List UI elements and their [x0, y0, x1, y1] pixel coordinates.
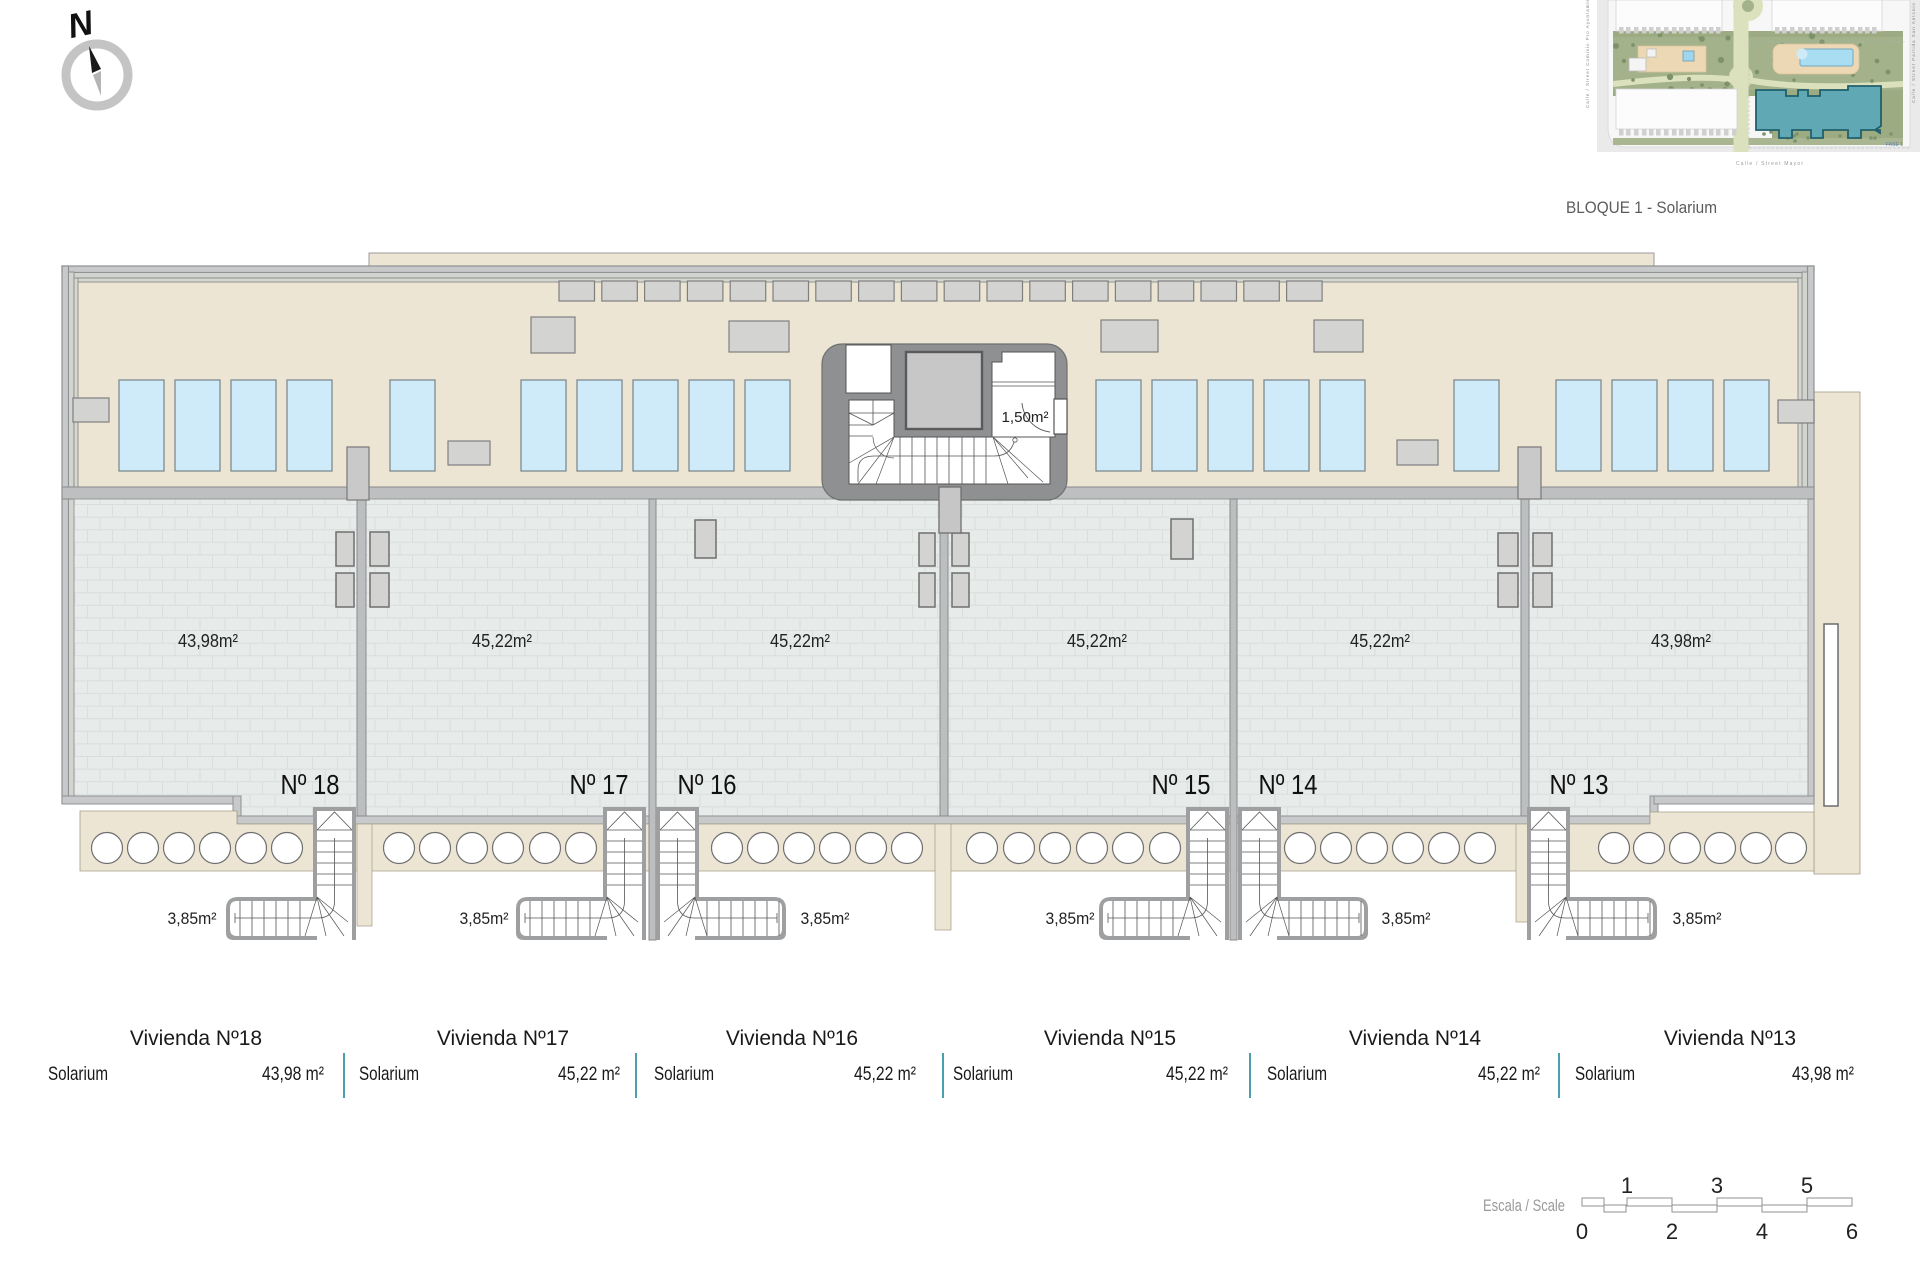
- svg-text:3,85m²: 3,85m²: [460, 909, 509, 928]
- svg-text:Nº 14: Nº 14: [1259, 769, 1318, 800]
- svg-text:Vivienda Nº14: Vivienda Nº14: [1349, 1027, 1482, 1050]
- svg-text:43,98m²: 43,98m²: [178, 630, 238, 651]
- svg-text:6: 6: [1846, 1219, 1858, 1244]
- svg-text:45,22 m²: 45,22 m²: [1166, 1063, 1228, 1085]
- svg-text:Nº 13: Nº 13: [1550, 769, 1609, 800]
- svg-text:BLOQUE 1 - Solarium: BLOQUE 1 - Solarium: [1566, 199, 1717, 217]
- svg-text:1,50m²: 1,50m²: [1002, 409, 1049, 426]
- svg-text:Vivienda Nº13: Vivienda Nº13: [1664, 1027, 1796, 1050]
- svg-text:43,98m²: 43,98m²: [1651, 630, 1711, 651]
- svg-text:45,22m²: 45,22m²: [472, 630, 532, 651]
- svg-text:4: 4: [1756, 1219, 1768, 1244]
- svg-text:45,22m²: 45,22m²: [770, 630, 830, 651]
- svg-text:45,22 m²: 45,22 m²: [558, 1063, 620, 1085]
- svg-text:Solarium: Solarium: [359, 1063, 419, 1085]
- svg-text:Calle / Street Mayor: Calle / Street Mayor: [1736, 161, 1804, 167]
- svg-text:3,85m²: 3,85m²: [1046, 909, 1095, 928]
- svg-text:Vivienda Nº16: Vivienda Nº16: [726, 1027, 858, 1050]
- svg-text:Vivienda Nº18: Vivienda Nº18: [130, 1027, 262, 1050]
- svg-text:Solarium: Solarium: [654, 1063, 714, 1085]
- svg-text:3,85m²: 3,85m²: [801, 909, 850, 928]
- svg-text:Calle / Street Partida San Ant: Calle / Street Partida San Antonio: [1911, 2, 1916, 103]
- svg-text:Nº 15: Nº 15: [1152, 769, 1211, 800]
- svg-text:Solarium: Solarium: [48, 1063, 108, 1085]
- svg-text:N: N: [65, 3, 98, 46]
- svg-text:0: 0: [1576, 1219, 1588, 1244]
- svg-text:Calle / Street Comisio Pro Ayu: Calle / Street Comisio Pro Ayuntamiento: [1585, 0, 1590, 108]
- svg-text:Solarium: Solarium: [1267, 1063, 1327, 1085]
- svg-text:45,22m²: 45,22m²: [1350, 630, 1410, 651]
- svg-text:45,22 m²: 45,22 m²: [1478, 1063, 1540, 1085]
- svg-text:45,22m²: 45,22m²: [1067, 630, 1127, 651]
- svg-text:3,85m²: 3,85m²: [1673, 909, 1722, 928]
- svg-text:Solarium: Solarium: [953, 1063, 1013, 1085]
- svg-text:45,22 m²: 45,22 m²: [854, 1063, 916, 1085]
- svg-text:Nº 16: Nº 16: [678, 769, 737, 800]
- svg-text:Vivienda Nº15: Vivienda Nº15: [1044, 1027, 1176, 1050]
- svg-text:2: 2: [1666, 1219, 1678, 1244]
- svg-text:43,98 m²: 43,98 m²: [262, 1063, 324, 1085]
- svg-text:Nº 18: Nº 18: [281, 769, 340, 800]
- svg-text:Solarium: Solarium: [1575, 1063, 1635, 1085]
- svg-text:3,85m²: 3,85m²: [168, 909, 217, 928]
- svg-text:Escala / Scale: Escala / Scale: [1483, 1196, 1565, 1215]
- svg-text:3: 3: [1711, 1173, 1723, 1198]
- svg-text:43,98 m²: 43,98 m²: [1792, 1063, 1854, 1085]
- svg-text:Nº 17: Nº 17: [570, 769, 629, 800]
- svg-text:Vivienda Nº17: Vivienda Nº17: [437, 1027, 569, 1050]
- svg-text:1: 1: [1621, 1173, 1633, 1198]
- svg-text:5: 5: [1801, 1173, 1813, 1198]
- svg-text:FASE 1: FASE 1: [1886, 142, 1903, 148]
- svg-text:3,85m²: 3,85m²: [1382, 909, 1431, 928]
